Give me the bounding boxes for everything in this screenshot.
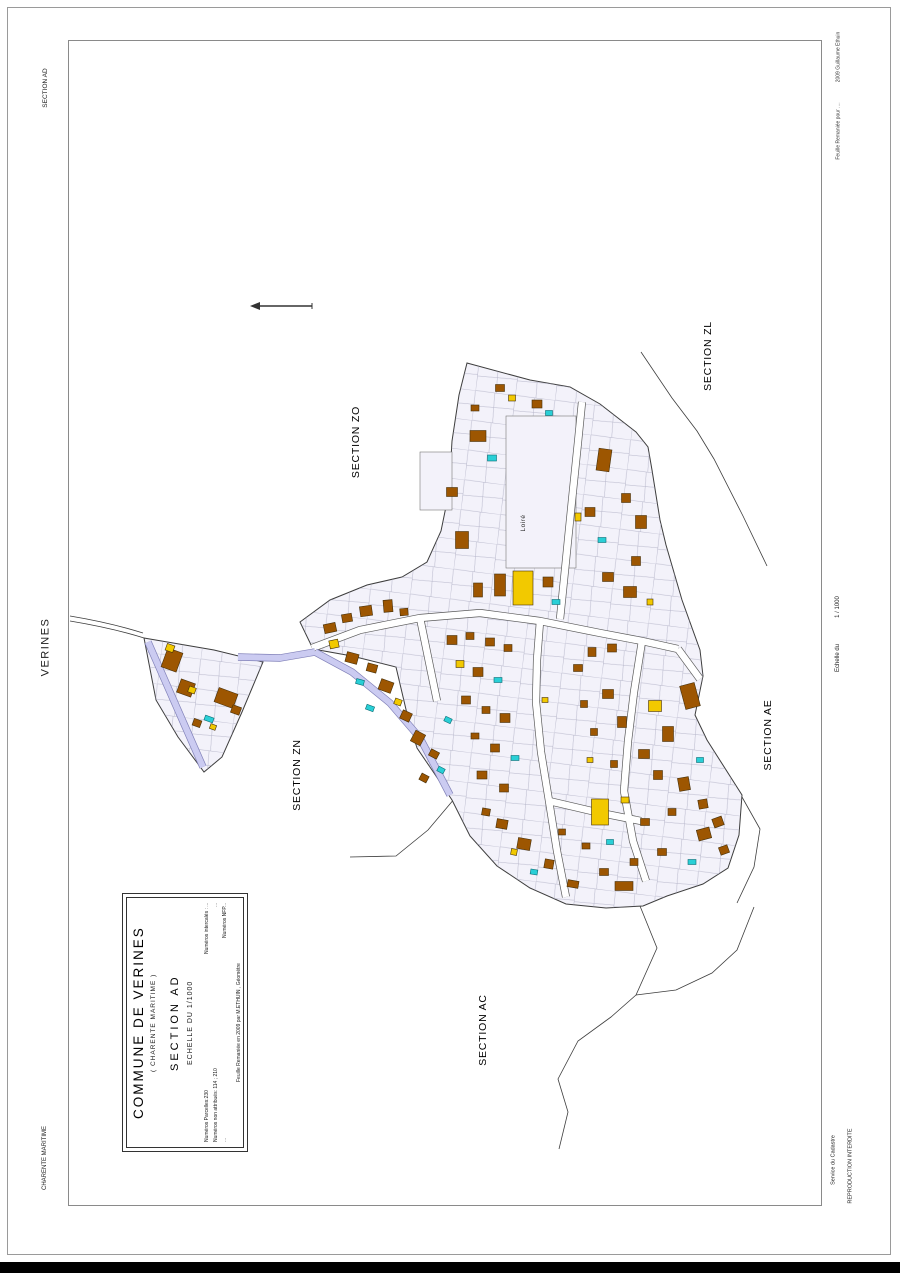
building <box>496 819 508 830</box>
building <box>591 729 598 736</box>
margin-service-cadastre: Service du Cadastre <box>831 1135 837 1185</box>
building <box>588 648 596 657</box>
building <box>470 431 486 442</box>
light-building <box>329 639 339 649</box>
light-building <box>509 395 516 401</box>
building <box>532 400 542 408</box>
building <box>496 385 505 392</box>
building <box>486 638 495 646</box>
building <box>585 508 595 517</box>
pool <box>530 869 538 875</box>
building <box>658 849 667 856</box>
light-building <box>513 571 533 605</box>
light-building <box>621 797 629 803</box>
building <box>366 663 378 673</box>
building <box>630 859 638 866</box>
building <box>698 799 708 809</box>
light-building <box>647 599 653 605</box>
section-label-ae: SECTION AE <box>763 699 774 770</box>
building <box>636 516 647 529</box>
building <box>624 587 637 598</box>
building <box>495 574 506 596</box>
light-building <box>542 698 548 703</box>
building <box>615 882 633 891</box>
light-building <box>511 849 518 856</box>
title-block-inner-border: COMMUNE DE VERINES ( CHARENTE MARITIME )… <box>126 897 244 1148</box>
building <box>559 829 566 835</box>
remaniement-footer: Feuille Remaniée en 2009 par M.ETHUIN , … <box>236 903 242 1142</box>
north-arrow <box>250 302 312 310</box>
building <box>654 771 663 780</box>
departement-subtitle: ( CHARENTE MARITIME ) <box>150 903 157 1142</box>
parcel-numbers-text: Numéros Parcelles:230 <box>204 1090 210 1142</box>
light-building <box>456 661 464 668</box>
building <box>471 733 479 739</box>
pool <box>598 538 606 543</box>
parcel-numbers-text: Numéros NFP... <box>222 903 228 938</box>
building <box>581 701 588 708</box>
section-title: SECTION AD <box>169 903 181 1142</box>
building <box>608 644 617 652</box>
building <box>582 843 590 849</box>
building <box>456 532 469 549</box>
pool <box>494 678 502 683</box>
building <box>574 665 583 672</box>
building <box>500 714 510 723</box>
building <box>600 869 609 876</box>
building <box>517 837 532 850</box>
margin-remaniement-year: 2009 Guillaume Ethuin <box>837 32 842 83</box>
building <box>622 494 631 503</box>
building <box>477 771 487 779</box>
title-block: COMMUNE DE VERINES ( CHARENTE MARITIME )… <box>122 893 248 1152</box>
margin-section-ad: SECTION AD <box>43 68 50 107</box>
margin-remaniement-note: Feuille Remaniée pour .... <box>837 102 842 159</box>
building <box>603 573 614 582</box>
light-building <box>575 513 581 521</box>
parcel-numbers-text: ... <box>222 1138 228 1142</box>
building <box>663 727 674 742</box>
margin-commune-name: VERINES <box>41 618 52 677</box>
building <box>419 773 429 783</box>
building <box>482 707 490 714</box>
section-label-zo: SECTION ZO <box>351 406 362 478</box>
building <box>481 808 490 816</box>
building <box>677 777 690 792</box>
parcel-numbers-text: Numéros intercalés : ... <box>204 903 210 954</box>
bottom-black-bar <box>0 1262 900 1273</box>
light-building <box>592 799 609 825</box>
section-label-zl: SECTION ZL <box>703 321 714 391</box>
scale-title: ECHELLE DU 1/1000 <box>187 903 194 1142</box>
building <box>383 600 393 613</box>
margin-scale-label: Echelle du <box>835 644 841 672</box>
building <box>500 784 509 792</box>
building <box>400 608 409 616</box>
parcel-numbers-text: ... <box>213 903 219 907</box>
light-building <box>587 758 593 763</box>
parcel-numbers-text: Numéros non attribués: 114 ; 210 <box>213 1068 219 1142</box>
building <box>596 448 612 472</box>
building <box>491 744 500 752</box>
pool <box>488 455 497 461</box>
parcel-numbers-info: Numéros Parcelles:230Numéros intercalés … <box>204 903 228 1142</box>
place-label-loire: Loiré <box>521 515 528 532</box>
building <box>618 717 627 728</box>
building <box>603 690 614 699</box>
building <box>641 819 650 826</box>
building <box>473 668 483 677</box>
light-building <box>649 701 662 712</box>
section-label-ac: SECTION AC <box>478 994 489 1066</box>
building <box>474 583 483 597</box>
building <box>359 605 372 617</box>
building <box>341 613 352 623</box>
building <box>447 488 458 497</box>
building <box>632 557 641 566</box>
pool <box>365 704 374 711</box>
building <box>447 636 457 645</box>
building <box>611 761 618 768</box>
pool <box>552 600 560 605</box>
pool <box>546 411 553 416</box>
building <box>462 696 471 704</box>
pool <box>607 840 614 845</box>
pool <box>511 756 519 761</box>
margin-departement: CHARENTE MARITIME <box>42 1126 48 1190</box>
building <box>567 880 579 889</box>
pool <box>697 758 704 763</box>
commune-title: COMMUNE DE VERINES <box>131 903 146 1142</box>
building <box>639 750 650 759</box>
building <box>504 645 512 652</box>
margin-reproduction-interdite: REPRODUCTION INTERDITE <box>848 1128 854 1203</box>
parcel-areas <box>144 363 742 908</box>
building <box>466 633 474 640</box>
section-label-zn: SECTION ZN <box>292 739 303 811</box>
building <box>543 577 553 587</box>
building <box>544 859 554 869</box>
building <box>471 405 479 411</box>
margin-scale-value: 1 / 1000 <box>835 596 841 618</box>
pool <box>688 860 696 865</box>
building <box>668 809 676 816</box>
